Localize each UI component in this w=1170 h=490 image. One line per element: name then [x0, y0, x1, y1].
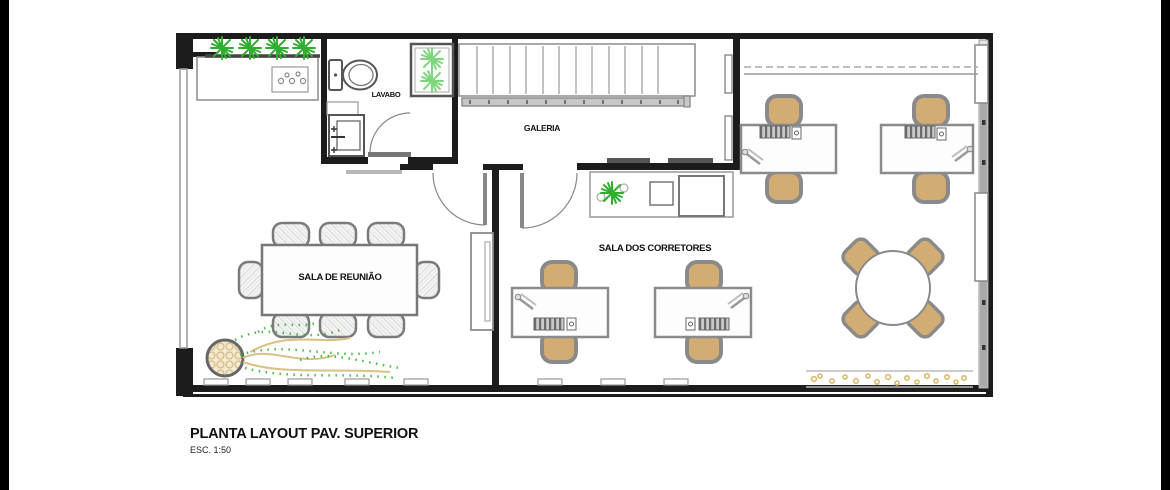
- bottom-wall-markers: [204, 379, 688, 385]
- round-table-icon: [856, 251, 930, 325]
- toilet-icon: [329, 60, 377, 90]
- right-wall-glazing: [975, 40, 988, 388]
- lavabo-planter-box: [411, 44, 453, 96]
- keyboard-icon: [760, 126, 790, 138]
- workstation-desk: [512, 262, 608, 362]
- round-table-group: [840, 236, 946, 340]
- chair-icon: [320, 223, 356, 247]
- chair-icon: [273, 223, 309, 247]
- room-label-galeria: GALERIA: [512, 123, 572, 133]
- phone-icon: [937, 128, 946, 140]
- keyboard-icon: [534, 318, 564, 330]
- room-label-lavabo: LAVABO: [364, 90, 408, 99]
- phone-icon: [792, 127, 801, 139]
- drawing-scale: ESC. 1:50: [190, 445, 418, 455]
- workstation-desk: [655, 262, 751, 362]
- kitchenette-counter: [197, 56, 320, 100]
- counter-small-box: [650, 182, 673, 205]
- staircase: [459, 44, 695, 107]
- left-glass-wall: [180, 69, 187, 348]
- workstation-desk: [741, 96, 836, 202]
- phone-icon: [567, 318, 576, 330]
- floorplan-canvas: LAVABO GALERIA SALA DE REUNIÃO SALA DOS …: [0, 0, 1170, 490]
- drawing-title: PLANTA LAYOUT PAV. SUPERIOR: [190, 426, 418, 442]
- meeting-room-door-arc-icon: [433, 173, 487, 225]
- chair-icon: [368, 313, 404, 337]
- room-label-sala-corretores: SALA DOS CORRETORES: [596, 243, 714, 254]
- chair-icon: [914, 96, 948, 126]
- room-label-sala-reuniao: SALA DE REUNIÃO: [263, 272, 417, 283]
- brokers-room-door-arc-icon: [520, 173, 577, 228]
- lavabo-fixtures: [327, 44, 453, 174]
- phone-icon: [686, 318, 695, 330]
- counter-large-box: [679, 176, 724, 216]
- sink-icon: [327, 102, 364, 156]
- keyboard-icon: [905, 126, 935, 138]
- keyboard-icon: [699, 318, 729, 330]
- brokers-counter: [590, 172, 733, 217]
- floorplan-drawing: [0, 0, 1170, 490]
- chair-icon: [914, 172, 948, 202]
- workstation-desk: [881, 96, 973, 202]
- chair-icon: [767, 172, 801, 202]
- chair-icon: [368, 223, 404, 247]
- pebble-strip-icon: [806, 371, 973, 387]
- chair-icon: [239, 262, 263, 298]
- cabinet-icon: [471, 233, 493, 330]
- chair-icon: [767, 96, 801, 126]
- chair-icon: [415, 262, 439, 298]
- title-block: PLANTA LAYOUT PAV. SUPERIOR ESC. 1:50: [190, 426, 418, 455]
- void-projection-lines: [744, 67, 978, 74]
- stair-handrail: [462, 98, 690, 106]
